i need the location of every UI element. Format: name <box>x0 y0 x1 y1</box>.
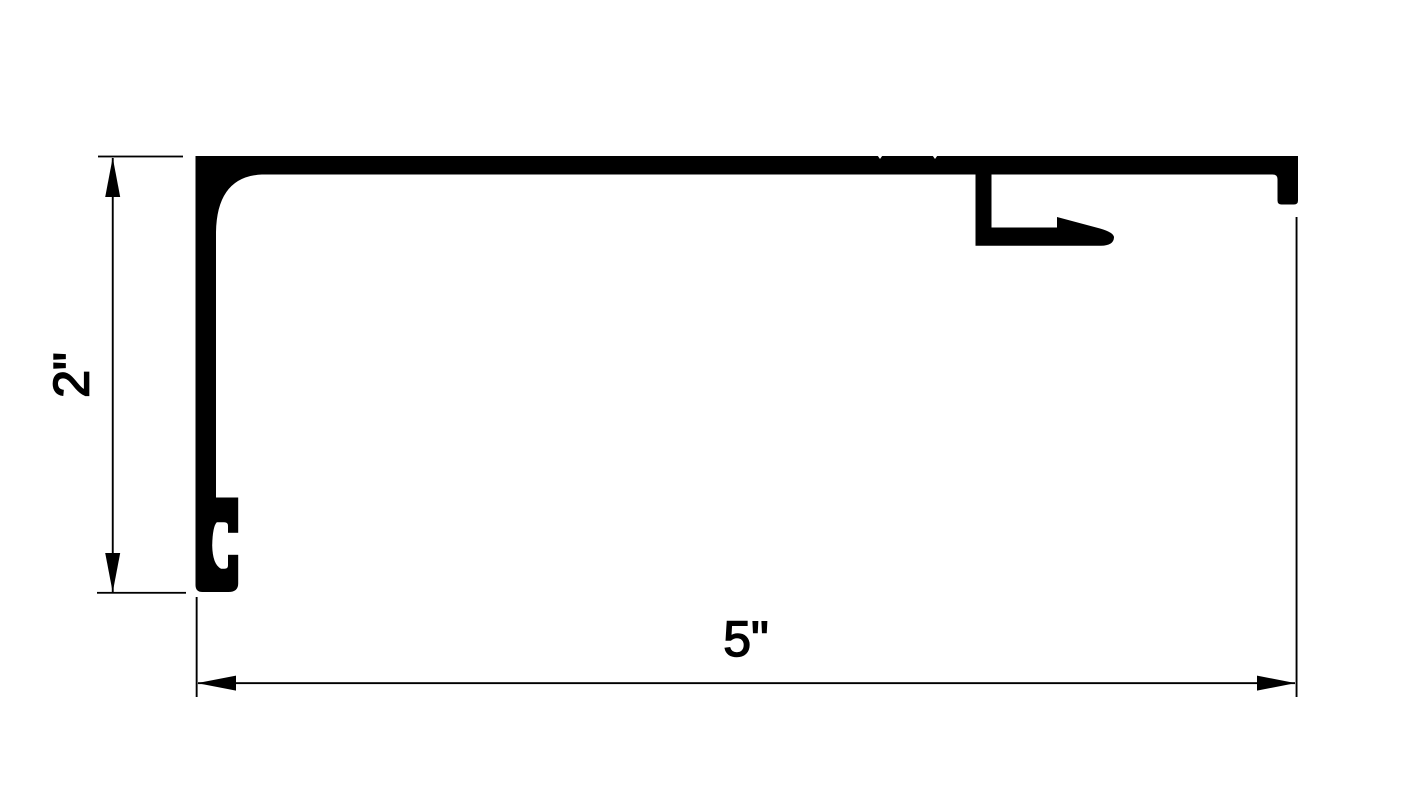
svg-text:2": 2" <box>44 352 100 398</box>
svg-text:5": 5" <box>723 611 769 667</box>
